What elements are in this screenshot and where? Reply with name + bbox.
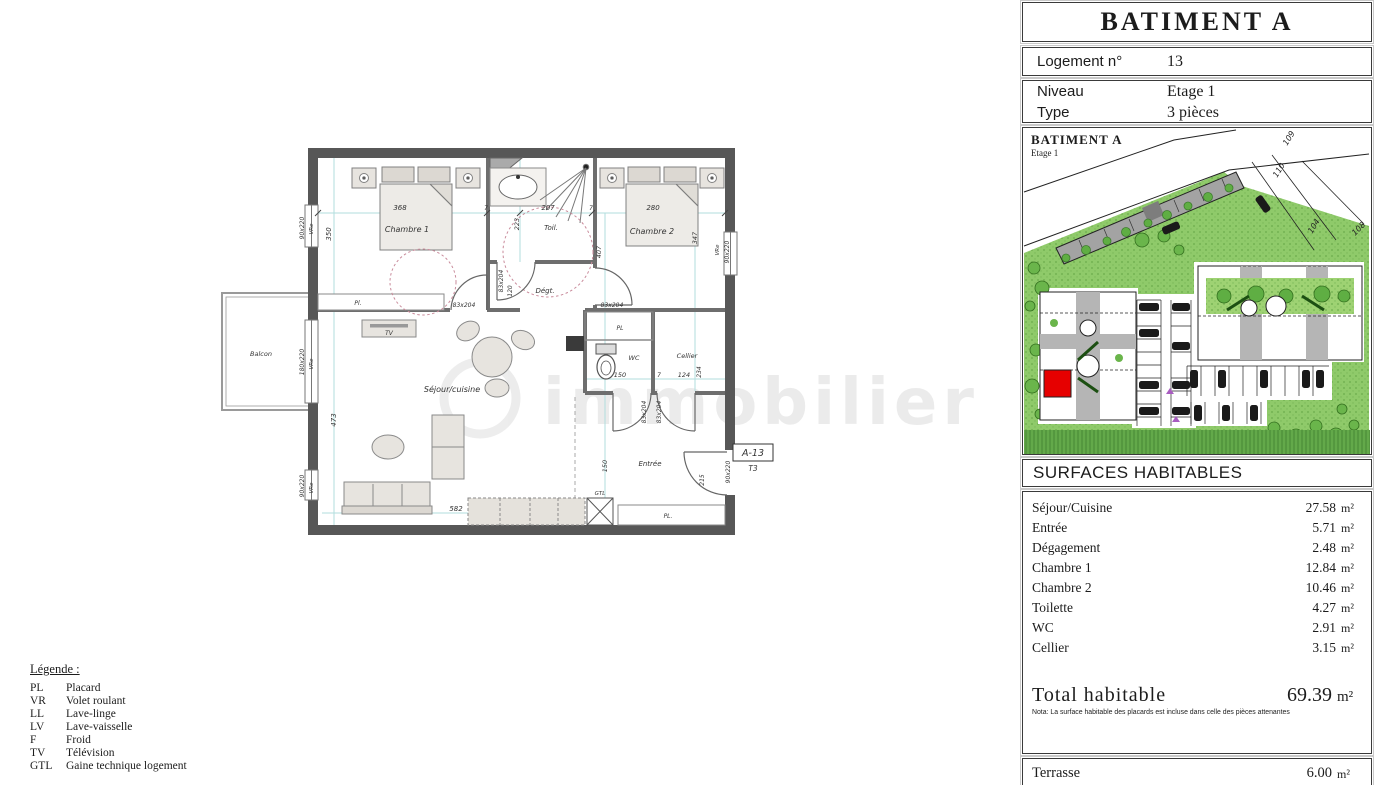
duct — [566, 336, 584, 351]
surface-value: 2.91 — [1290, 620, 1336, 636]
legend-abbr: LL — [30, 708, 66, 720]
dim-label: VRe — [309, 358, 315, 370]
room-label-gtl: GTL — [595, 491, 606, 497]
toilet-tank — [596, 344, 616, 354]
surface-label: Séjour/Cuisine — [1023, 500, 1290, 516]
dim-label: 150 — [601, 460, 609, 472]
level-type-box: Niveau Etage 1 Type 3 pièces — [1022, 80, 1372, 123]
dim-label: 90x220 — [299, 475, 306, 498]
dim-label: 7 — [484, 205, 488, 212]
total-row: Total habitable 69.39 m² — [1023, 684, 1371, 707]
surface-label: Dégagement — [1023, 540, 1290, 556]
dim-label: 83x204 — [601, 302, 624, 309]
legend-abbr: PL — [30, 682, 66, 694]
highlighted-unit — [1044, 370, 1071, 397]
surface-unit: m² — [1336, 541, 1371, 556]
dim-label: 350 — [325, 227, 333, 241]
niveau-label: Niveau — [1023, 83, 1167, 100]
legend-item: LVLave-vaisselle — [30, 720, 187, 733]
surface-unit: m² — [1336, 501, 1371, 516]
nota-text: Nota: La surface habitable des placards … — [1023, 709, 1371, 716]
legend-label: Lave-linge — [66, 708, 116, 720]
surface-value: 27.58 — [1290, 500, 1336, 516]
surface-value: 12.84 — [1290, 560, 1336, 576]
surface-value: 5.71 — [1290, 520, 1336, 536]
legend-abbr: GTL — [30, 760, 66, 772]
terrasse-box: Terrasse 6.00 m² — [1022, 758, 1372, 785]
dim-label: 7 — [657, 372, 661, 379]
dim-label: 368 — [393, 204, 407, 212]
legend: Légende : PLPlacard VRVolet roulant LLLa… — [30, 662, 187, 772]
surfaces-title: SURFACES HABITABLES — [1023, 463, 1242, 483]
room-label-sejour: Séjour/cuisine — [424, 384, 480, 394]
legend-abbr: F — [30, 734, 66, 746]
dim-label: 90x220 — [725, 461, 732, 484]
dim-label: 473 — [330, 413, 338, 426]
dimension-labels: 368 7 207 7 280 223 350 473 407 347 120 … — [299, 204, 732, 513]
dim-label: 83x204 — [453, 302, 476, 309]
dim-label: 215 — [699, 474, 706, 486]
room-label-wc: WC — [629, 354, 640, 362]
dim-label: 7 — [589, 205, 593, 212]
dim-label: 83x204 — [656, 401, 663, 424]
legend-item: VRVolet roulant — [30, 694, 187, 707]
surface-row: Séjour/Cuisine27.58m² — [1023, 498, 1371, 518]
dim-label: VRe — [309, 482, 315, 494]
legend-label: Froid — [66, 734, 91, 746]
surface-unit: m² — [1336, 601, 1371, 616]
dim-label: VRe — [309, 223, 315, 235]
surface-label: WC — [1023, 620, 1290, 636]
siteplan-title: BATIMENT A — [1031, 132, 1123, 148]
unit-tag: A-13 T3 — [733, 444, 773, 473]
room-label-tv: TV — [385, 330, 394, 337]
logement-box: Logement n° 13 — [1022, 47, 1372, 76]
legend-title: Légende : — [30, 662, 187, 677]
room-label-pl-small: Pl. — [354, 300, 361, 307]
surface-row: Dégagement2.48m² — [1023, 538, 1371, 558]
surface-row: Entrée5.71m² — [1023, 518, 1371, 538]
chair — [508, 327, 537, 353]
surface-value: 4.27 — [1290, 600, 1336, 616]
batiment-a-block — [1040, 292, 1136, 420]
building-title: BATIMENT A — [1100, 7, 1293, 37]
total-unit: m² — [1332, 689, 1371, 706]
dim-label: VRe — [715, 244, 721, 256]
surface-value: 3.15 — [1290, 640, 1336, 656]
dim-label: 180x220 — [299, 349, 306, 376]
surfaces-title-box: SURFACES HABITABLES — [1022, 459, 1372, 487]
surface-label: Toilette — [1023, 600, 1290, 616]
legend-item: GTLGaine technique logement — [30, 759, 187, 772]
chair — [453, 317, 483, 345]
room-label-balcon: Balcon — [250, 350, 272, 358]
surface-label: Chambre 2 — [1023, 580, 1290, 596]
surface-row: Cellier3.15m² — [1023, 638, 1371, 658]
unit-tag-type: T3 — [748, 464, 758, 473]
dim-label: 120 — [507, 285, 514, 297]
legend-label: Gaine technique logement — [66, 760, 187, 772]
legend-item: LLLave-linge — [30, 707, 187, 720]
surface-row: WC2.91m² — [1023, 618, 1371, 638]
total-value: 69.39 — [1287, 684, 1332, 707]
dim-label: 582 — [449, 505, 463, 513]
room-label-degagement: Dégt. — [535, 287, 554, 295]
type-value: 3 pièces — [1167, 104, 1219, 122]
type-label: Type — [1023, 104, 1167, 121]
total-label: Total habitable — [1023, 684, 1287, 707]
dim-label: 83x204 — [498, 270, 505, 293]
dim-label: 207 — [541, 204, 555, 212]
surface-row: Chambre 210.46m² — [1023, 578, 1371, 598]
surface-label: Entrée — [1023, 520, 1290, 536]
shower-spray — [540, 164, 589, 223]
surface-label: Cellier — [1023, 640, 1290, 656]
windows — [305, 205, 737, 500]
niveau-value: Etage 1 — [1167, 83, 1215, 101]
dim-label: 407 — [595, 245, 603, 258]
surface-value: 2.48 — [1290, 540, 1336, 556]
legend-label: Placard — [66, 682, 100, 694]
surface-unit: m² — [1336, 621, 1371, 636]
legend-item: FFroid — [30, 733, 187, 746]
bed-chambre1 — [352, 167, 480, 250]
legend-abbr: VR — [30, 695, 66, 707]
dim-label: 150 — [614, 371, 626, 379]
armchair — [372, 435, 404, 459]
room-label-entree: Entrée — [638, 460, 661, 468]
room-label-pl-entree: PL. — [664, 513, 673, 520]
legend-item: PLPlacard — [30, 681, 187, 694]
siteplan-box: BATIMENT A Etage 1 — [1022, 127, 1372, 455]
gtl-box — [587, 498, 613, 525]
room-label-toilette: Toil. — [544, 224, 558, 232]
dim-label: 90x220 — [724, 241, 731, 264]
kitchen-counter — [468, 498, 585, 525]
terrasse-label: Terrasse — [1023, 765, 1307, 782]
watermark: immobilier — [444, 362, 979, 440]
dim-label: 223 — [513, 218, 521, 230]
legend-label: Télévision — [66, 747, 115, 759]
siteplan-subtitle: Etage 1 — [1031, 148, 1123, 158]
surface-unit: m² — [1336, 581, 1371, 596]
siteplan-label: BATIMENT A Etage 1 — [1031, 132, 1123, 158]
chair — [485, 379, 509, 397]
sofa-long — [344, 482, 430, 508]
dim-label: 90x220 — [299, 217, 306, 240]
terrasse-unit: m² — [1332, 767, 1371, 782]
floorplan-sheet: immobilier — [0, 0, 1390, 785]
unit-tag-code: A-13 — [741, 448, 764, 459]
legend-label: Lave-vaisselle — [66, 721, 132, 733]
room-label-chambre1: Chambre 1 — [385, 225, 429, 234]
surface-value: 10.46 — [1290, 580, 1336, 596]
surface-label: Chambre 1 — [1023, 560, 1290, 576]
room-label-chambre2: Chambre 2 — [630, 227, 674, 236]
legend-item: TVTélévision — [30, 746, 187, 759]
dim-label: 347 — [691, 231, 699, 244]
legend-label: Volet roulant — [66, 695, 126, 707]
terrasse-value: 6.00 — [1307, 765, 1332, 782]
logement-label: Logement n° — [1023, 53, 1167, 70]
surface-unit: m² — [1336, 561, 1371, 576]
legend-abbr: LV — [30, 721, 66, 733]
dining-table — [472, 337, 512, 377]
east-building-block — [1198, 266, 1362, 360]
logement-value: 13 — [1167, 53, 1183, 71]
surface-unit: m² — [1336, 521, 1371, 536]
surface-row: Chambre 112.84m² — [1023, 558, 1371, 578]
siteplan-map: 109 110 104 108 — [1023, 128, 1371, 454]
surface-row: Toilette4.27m² — [1023, 598, 1371, 618]
dim-label: 124 — [678, 371, 690, 379]
room-label-cellier: Cellier — [677, 352, 699, 360]
surfaces-table: Séjour/Cuisine27.58m² Entrée5.71m² Dégag… — [1022, 491, 1372, 754]
room-label-pl: PL — [617, 325, 624, 332]
dim-label: 280 — [646, 204, 660, 212]
dim-label: 83x204 — [641, 401, 648, 424]
legend-abbr: TV — [30, 747, 66, 759]
building-title-box: BATIMENT A — [1022, 2, 1372, 42]
surface-unit: m² — [1336, 641, 1371, 656]
dim-label: 234 — [696, 366, 703, 378]
